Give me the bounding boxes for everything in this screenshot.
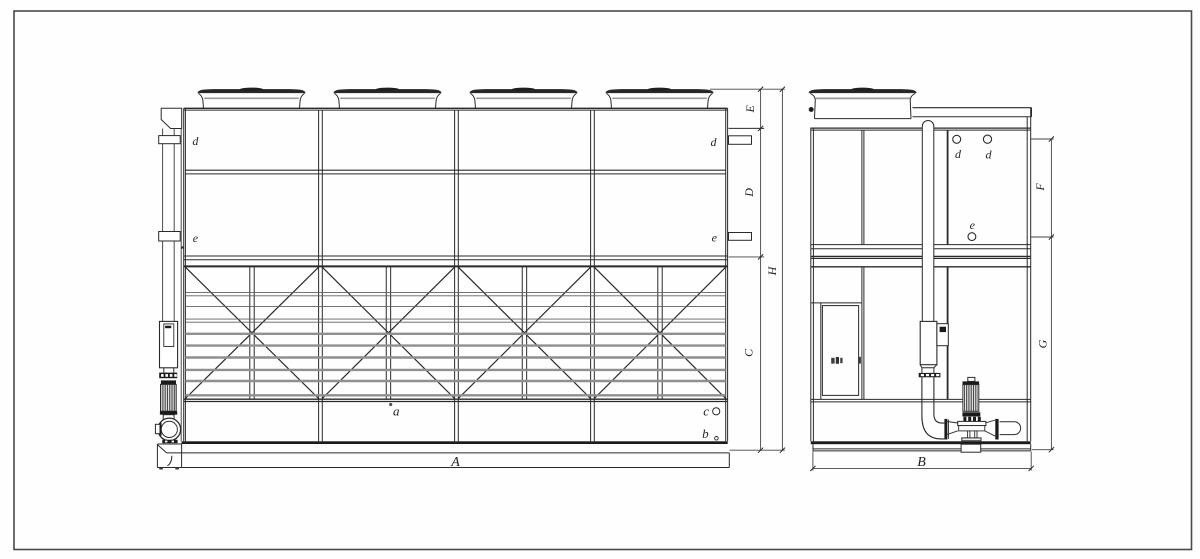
svg-text:e: e [970, 218, 976, 232]
svg-text:C: C [741, 348, 755, 357]
svg-text:A: A [450, 455, 460, 470]
svg-text:H: H [765, 265, 779, 276]
svg-text:E: E [743, 104, 757, 113]
svg-text:a: a [393, 403, 400, 418]
svg-text:D: D [742, 188, 756, 198]
svg-text:G: G [1036, 339, 1050, 348]
svg-text:F: F [1033, 183, 1047, 192]
svg-text:e: e [193, 231, 199, 245]
svg-text:d: d [986, 147, 993, 161]
svg-text:B: B [917, 455, 926, 470]
svg-text:c: c [703, 403, 709, 418]
svg-text:e: e [712, 230, 718, 244]
svg-text:d: d [192, 134, 199, 148]
svg-text:d: d [955, 147, 962, 161]
svg-text:d: d [711, 135, 718, 149]
svg-text:b: b [702, 426, 709, 441]
